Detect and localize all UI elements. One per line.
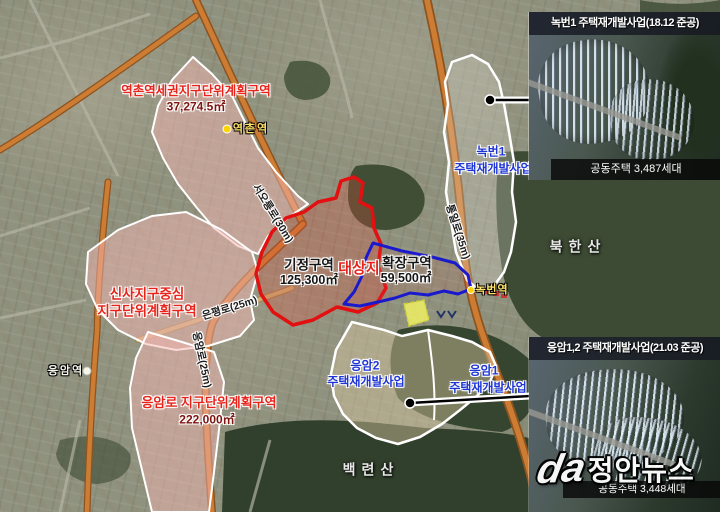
bukhansan-label: 북한산 bbox=[550, 239, 607, 254]
baekryeonsan-label: 백련산 bbox=[343, 462, 400, 477]
eumam-station-label: 응암역 bbox=[48, 365, 84, 377]
highlighted-parcel bbox=[404, 300, 429, 326]
eumam2-project-label-line2: 주택재개발사업 bbox=[327, 375, 404, 388]
target-site-label: 대상지 bbox=[338, 261, 379, 278]
yeokchon-district-title: 역촌역세권지구단위계획구역 bbox=[121, 85, 271, 99]
existing-zone-area: 125,300㎡ bbox=[280, 274, 338, 288]
yeokchon-station-label: 역촌역 bbox=[233, 123, 269, 135]
expansion-zone-area: 59,500㎡ bbox=[381, 272, 432, 286]
jeongan-news-watermark-text: 정안뉴스 bbox=[588, 449, 695, 489]
eumam1-project-label-line2: 주택재개발사업 bbox=[449, 381, 526, 394]
nokbeon1-panel-title: 녹번1 주택재개발사업(18.12 준공) bbox=[529, 12, 720, 35]
nokbeon-station-label: 녹번역 bbox=[475, 284, 508, 296]
news-watermark: da 정안뉴스 bbox=[538, 449, 695, 489]
eumam1-project-label-line1: 응암1 bbox=[470, 364, 499, 377]
sinsa-district-title-line2: 지구단위계획구역 bbox=[97, 305, 196, 320]
yeokchon-district-area: 37,274.5㎡ bbox=[167, 100, 226, 113]
nokbeon1-project-label-line1: 녹번1 bbox=[477, 145, 506, 158]
eumam12-panel-title: 응암1,2 주택재개발사업(21.03 준공) bbox=[529, 337, 720, 360]
eumam-station-dot bbox=[83, 367, 91, 375]
nokbeon1-inset-panel: 녹번1 주택재개발사업(18.12 준공) 공동주택 3,487세대 bbox=[528, 12, 720, 180]
expansion-zone-label: 확장구역 bbox=[382, 257, 432, 272]
redevelopment-map-figure: 역촌역세권지구단위계획구역 37,274.5㎡ 역촌역 녹번역 응암역 신사지구… bbox=[0, 0, 720, 512]
nokbeon1-project-label-line2: 주택재개발사업 bbox=[454, 162, 531, 175]
tree-symbols bbox=[437, 311, 456, 317]
yeokchon-station-dot bbox=[223, 125, 231, 133]
existing-zone-label: 기정구역 bbox=[284, 259, 334, 274]
nokbeon1-panel-caption: 공동주택 3,487세대 bbox=[551, 159, 720, 180]
nokbeon-station-dot bbox=[468, 287, 475, 294]
sinsa-district-title-line1: 신사지구중심 bbox=[110, 288, 185, 303]
nokbeon1-aerial-photo bbox=[529, 12, 720, 180]
eumam2-project-label-line1: 응암2 bbox=[351, 359, 380, 372]
eumamro-district-area: 222,000㎡ bbox=[179, 413, 234, 426]
eumamro-district-title: 응암로 지구단위계획구역 bbox=[141, 396, 276, 410]
jeongan-news-logo-icon: da bbox=[534, 448, 589, 490]
